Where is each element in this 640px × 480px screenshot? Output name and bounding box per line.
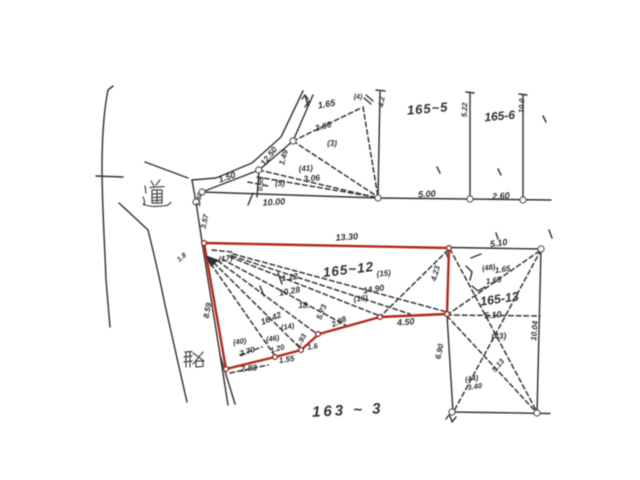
- svg-text:10.00: 10.00: [262, 196, 285, 207]
- svg-text:(40): (40): [232, 336, 247, 347]
- svg-text:(43): (43): [491, 330, 507, 341]
- svg-text:(16): (16): [353, 293, 368, 303]
- svg-text:10.0: 10.0: [517, 98, 527, 114]
- svg-text:0.95: 0.95: [255, 175, 265, 191]
- svg-text:4.50: 4.50: [396, 316, 415, 328]
- svg-text:18.: 18.: [298, 301, 309, 310]
- svg-text:4.2: 4.2: [376, 95, 386, 108]
- svg-text:10.04: 10.04: [529, 320, 540, 341]
- svg-text:3.06: 3.06: [303, 172, 321, 183]
- svg-text:(3): (3): [327, 139, 337, 148]
- svg-text:(15): (15): [376, 268, 391, 278]
- svg-text:165-6: 165-6: [484, 108, 516, 125]
- svg-text:5.00: 5.00: [418, 189, 436, 200]
- svg-text:2.60: 2.60: [491, 191, 510, 202]
- svg-text:(46): (46): [265, 333, 280, 344]
- svg-text:(5): (5): [275, 179, 285, 188]
- svg-text:5.22: 5.22: [460, 102, 470, 118]
- svg-text:13.30: 13.30: [335, 231, 358, 243]
- svg-text:5.10: 5.10: [484, 309, 502, 320]
- svg-text:2.83: 2.83: [239, 362, 258, 374]
- svg-text:(4): (4): [354, 94, 363, 101]
